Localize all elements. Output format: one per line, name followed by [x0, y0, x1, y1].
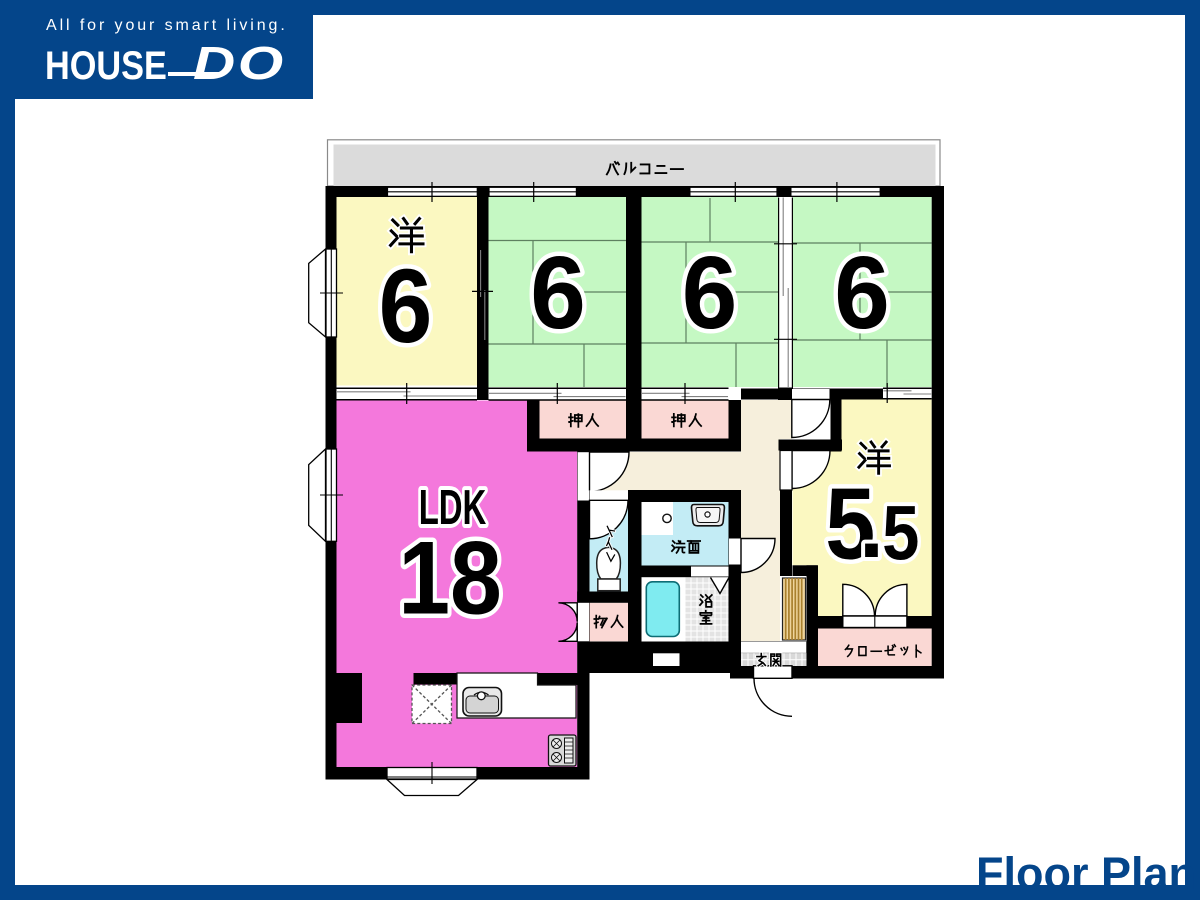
svg-text:6: 6 [379, 248, 433, 365]
svg-text:6: 6 [530, 235, 586, 351]
svg-text:18: 18 [398, 520, 502, 636]
svg-text:.: . [859, 477, 884, 577]
svg-text:5: 5 [882, 491, 919, 576]
svg-text:6: 6 [834, 235, 890, 351]
svg-text:6: 6 [682, 235, 738, 351]
